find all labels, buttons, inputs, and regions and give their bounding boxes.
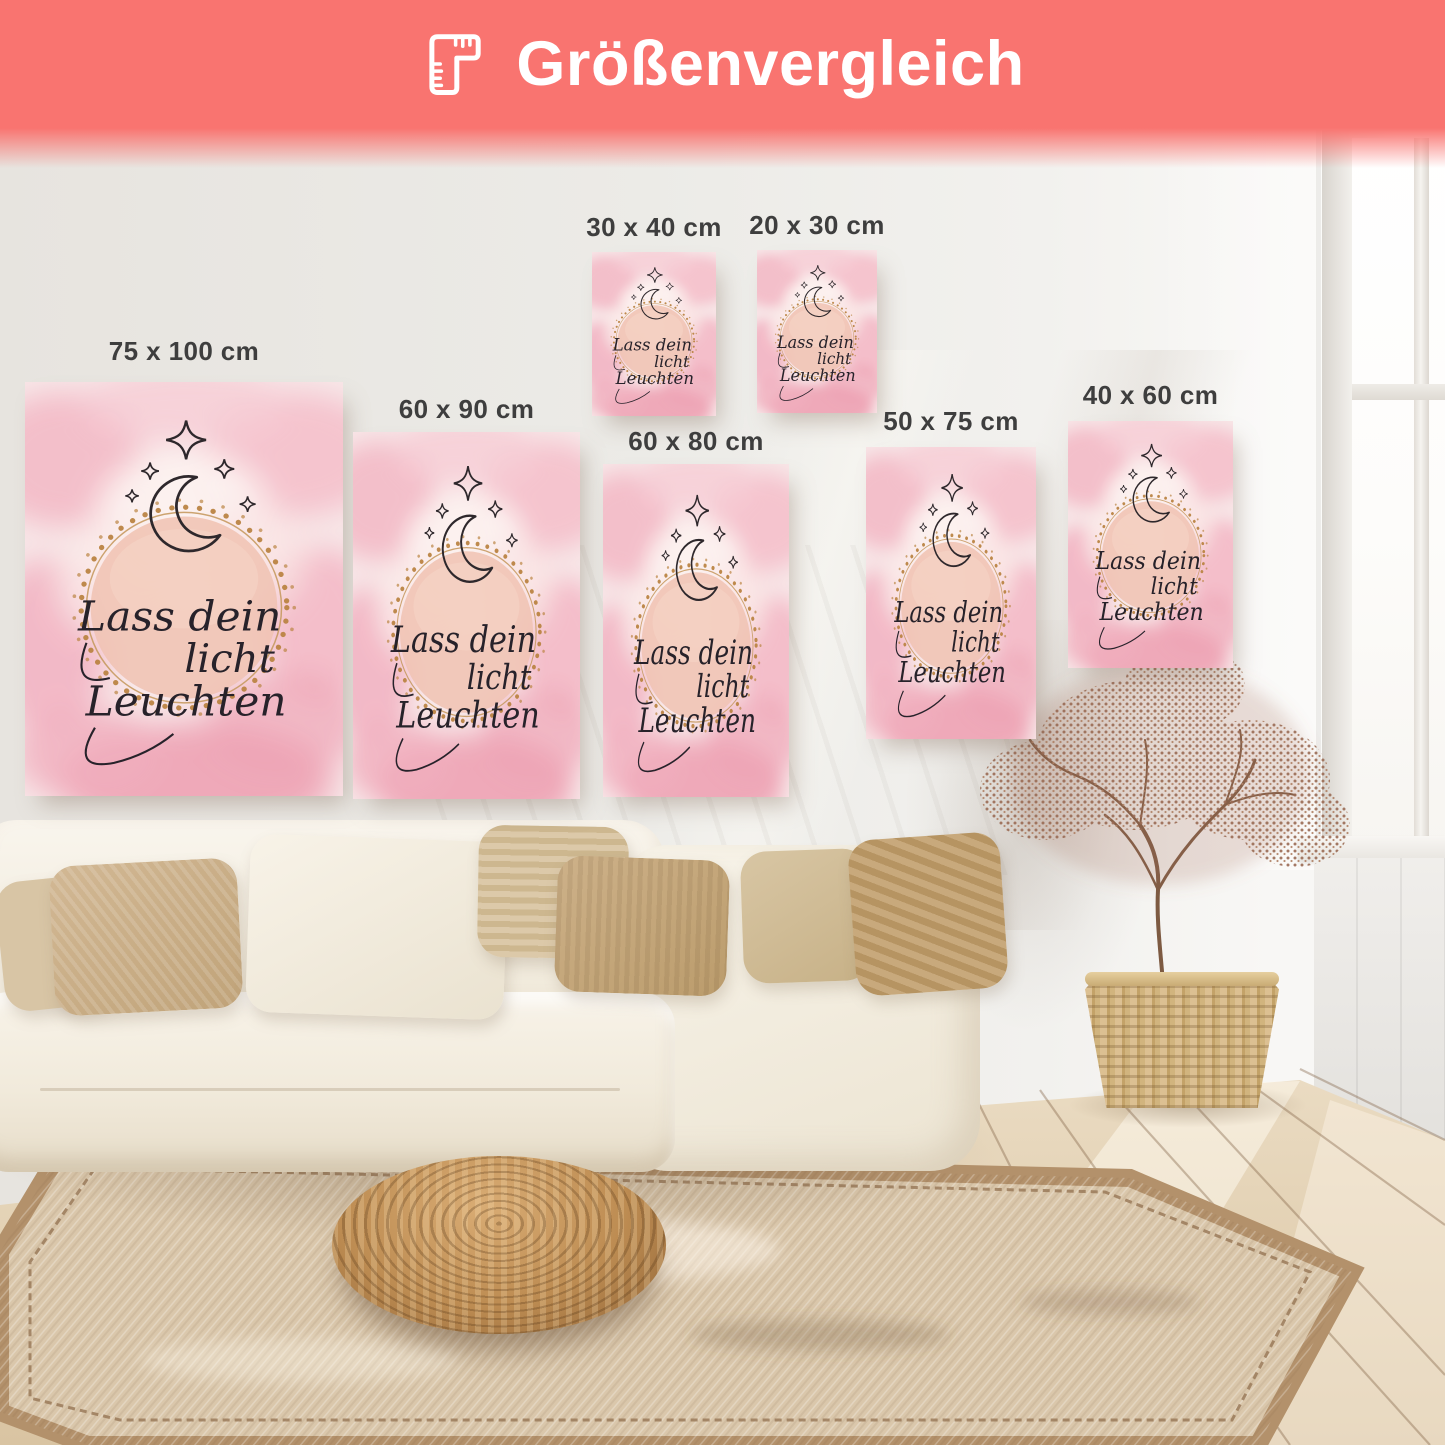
pillow [554, 855, 731, 997]
page-title: Größenvergleich [516, 28, 1024, 100]
poster-artwork [353, 432, 580, 799]
poster-artwork [25, 382, 343, 796]
poster-artwork [757, 250, 877, 413]
size-comparison-image: Lass dein licht Leuchten [0, 0, 1445, 1445]
poster-artwork [592, 252, 716, 416]
size-label-30x40: 30 x 40 cm [575, 212, 733, 243]
size-label-60x90: 60 x 90 cm [353, 394, 580, 425]
poster-20x30 [757, 250, 877, 413]
wicker-pouf [332, 1156, 666, 1334]
poster-60x80 [603, 464, 789, 797]
folding-ruler-icon [420, 26, 496, 102]
poster-artwork [1068, 421, 1233, 668]
size-label-60x80: 60 x 80 cm [603, 426, 789, 457]
size-label-40x60: 40 x 60 cm [1068, 380, 1233, 411]
pillow [48, 857, 244, 1017]
poster-50x75 [866, 447, 1036, 739]
sofa-seam [40, 1088, 620, 1091]
poster-30x40 [592, 252, 716, 416]
header-content: Größenvergleich [420, 26, 1024, 102]
poster-artwork [866, 447, 1036, 739]
pillow [245, 834, 509, 1021]
size-label-50x75: 50 x 75 cm [866, 406, 1036, 437]
poster-artwork [603, 464, 789, 797]
poster-75x100 [25, 382, 343, 796]
size-label-75x100: 75 x 100 cm [25, 336, 343, 367]
poster-60x90 [353, 432, 580, 799]
sofa-seat-cushion [0, 992, 675, 1172]
wicker-basket-rim [1085, 972, 1279, 986]
size-label-20x30: 20 x 30 cm [740, 210, 894, 241]
header-banner: Größenvergleich [0, 0, 1445, 168]
poster-40x60 [1068, 421, 1233, 668]
wicker-basket [1085, 976, 1279, 1108]
